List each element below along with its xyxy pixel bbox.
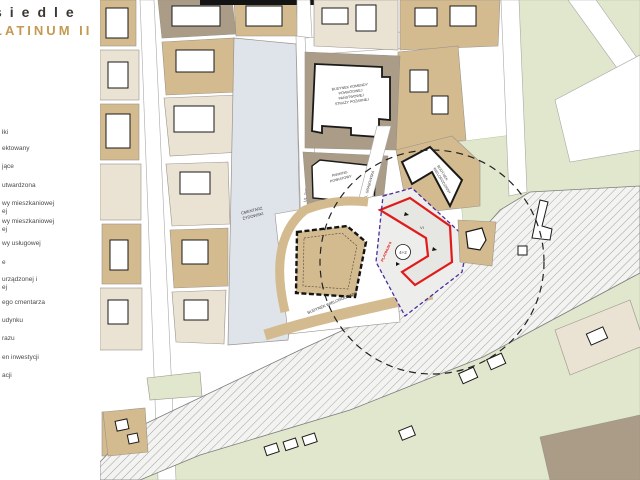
legend-item: wy usługowej — [2, 240, 41, 247]
logo-line-osiedle: siedle — [0, 4, 114, 20]
site-plan-page: siedle LATINUM II łki ektowany jące utwa… — [0, 0, 640, 480]
logo-line-platinum: LATINUM II — [0, 23, 114, 38]
legend-item: ektowany — [2, 145, 29, 152]
legend-item: e — [2, 259, 6, 266]
legend-item: razu — [2, 335, 15, 342]
legend-item: utwardzona — [2, 182, 36, 189]
legend-item: ej — [2, 208, 7, 215]
legend-item: ej — [2, 284, 7, 291]
legend-item: ej — [2, 226, 7, 233]
legend-item: acji — [2, 372, 12, 379]
legend-item: ego cmentarza — [2, 299, 45, 306]
legend-item: urządzonej i — [2, 276, 37, 283]
parcel-east-of-site — [458, 220, 496, 266]
project-logo: siedle LATINUM II — [0, 4, 114, 38]
legend-item: en inwestycji — [2, 354, 39, 361]
legend-item: wy mieszkaniowej — [2, 200, 54, 207]
legend-item: łki — [2, 129, 8, 136]
unit-badge-label: 4+2 — [399, 250, 407, 255]
legend-item: wy mieszkaniowej — [2, 218, 54, 225]
storey-label: VI — [420, 225, 424, 230]
site-plan-map: CMENTARZ ŻYDOWSKI UL. ŻYDOWSKA — [100, 0, 640, 480]
legend-item: udynku — [2, 317, 23, 324]
legend-item: jące — [2, 163, 14, 170]
